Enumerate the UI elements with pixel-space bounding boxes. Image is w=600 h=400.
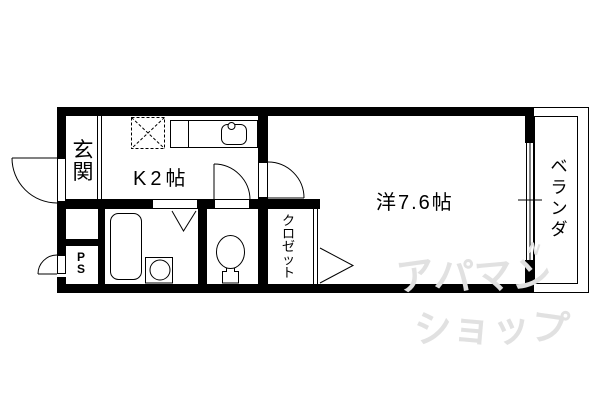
- veranda-char-3: ン: [551, 198, 568, 219]
- closet-char-5: ト: [282, 266, 295, 279]
- bathroom-fixtures: [111, 214, 173, 284]
- wall-left-middle: [57, 202, 66, 258]
- genkan-char-1: 玄: [73, 140, 94, 162]
- toilet-base: [223, 268, 239, 284]
- veranda-char-2: ラ: [551, 177, 568, 198]
- washing-machine-drum: [150, 260, 170, 280]
- pipe-space-label: P S: [72, 251, 90, 275]
- watermark-line-2: ショップ: [414, 297, 570, 352]
- wall-top: [57, 107, 534, 116]
- wall-right-upper: [525, 107, 534, 143]
- wall-ps-bath-divider: [98, 199, 105, 284]
- kitchen-label: K2帖: [133, 162, 189, 191]
- veranda-char-1: ベ: [551, 156, 568, 177]
- toilet-fixtures: [217, 236, 245, 284]
- entrance-door-arc: [12, 158, 57, 203]
- floorplan-image: 玄 関 P S K2帖 洋7.6帖 ク ロ ゼ ッ ト ベ ラ ン ダ アパマン…: [0, 0, 600, 400]
- veranda-char-4: ダ: [551, 219, 568, 240]
- wall-left-upper: [57, 107, 66, 158]
- genkan-label: 玄 関: [69, 140, 97, 184]
- ps-char-2: S: [77, 262, 85, 276]
- watermark-char: ョ: [451, 295, 495, 353]
- wall-bath-toilet-divider: [198, 199, 207, 284]
- bathtub: [111, 214, 142, 280]
- wall-kitchen-room-lower: [258, 198, 268, 284]
- watermark-char: マ: [472, 243, 516, 301]
- toilet-door-opening: [215, 200, 250, 209]
- watermark-char: パ: [432, 243, 477, 302]
- watermark-char: プ: [527, 295, 573, 355]
- entrance-door-frame: [58, 159, 66, 202]
- main-room-label: 洋7.6帖: [376, 186, 454, 215]
- bath-folding-door-mark: [172, 211, 196, 231]
- wall-kitchen-room-upper: [258, 115, 268, 162]
- ps-door-frame: [58, 256, 66, 274]
- veranda-label: ベ ラ ン ダ: [546, 156, 572, 240]
- toilet-bowl: [217, 236, 245, 269]
- kitchen-fixtures: [132, 118, 258, 149]
- watermark-char: シ: [411, 295, 456, 354]
- faucet-icon: [228, 123, 235, 130]
- ps-door-arc: [38, 255, 57, 274]
- wall-mid-horizontal-left: [66, 199, 152, 209]
- wall-above-ps: [66, 239, 98, 246]
- bath-door-opening: [153, 200, 198, 209]
- room-door-frame: [259, 163, 268, 198]
- genkan-char-2: 関: [73, 162, 94, 184]
- closet-folding-door-mark: [320, 248, 353, 283]
- closet-label: ク ロ ゼ ッ ト: [280, 214, 297, 279]
- room-door-arc: [268, 162, 304, 198]
- toilet-door-arc: [214, 164, 250, 200]
